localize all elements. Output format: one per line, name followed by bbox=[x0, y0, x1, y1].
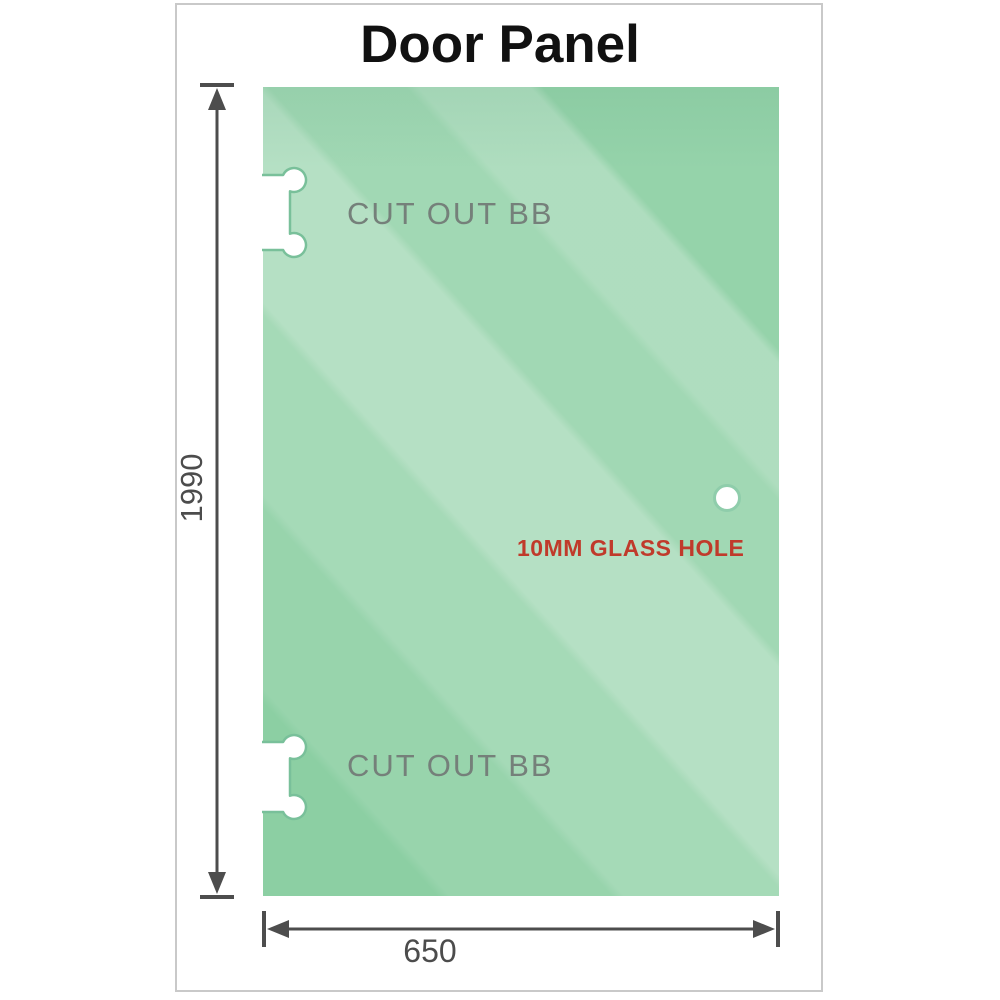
page-title: Door Panel bbox=[175, 14, 825, 75]
height-value: 1990 bbox=[174, 438, 210, 538]
cutout-bottom-label: CUT OUT BB bbox=[347, 748, 554, 784]
cutout-top-label: CUT OUT BB bbox=[347, 196, 554, 232]
diagram-canvas: Door Panel CUT OUT BB CUT OUT BB 10MM bbox=[0, 0, 1000, 1000]
width-value: 650 bbox=[370, 933, 490, 970]
glass-hole-label: 10MM GLASS HOLE bbox=[517, 535, 744, 562]
